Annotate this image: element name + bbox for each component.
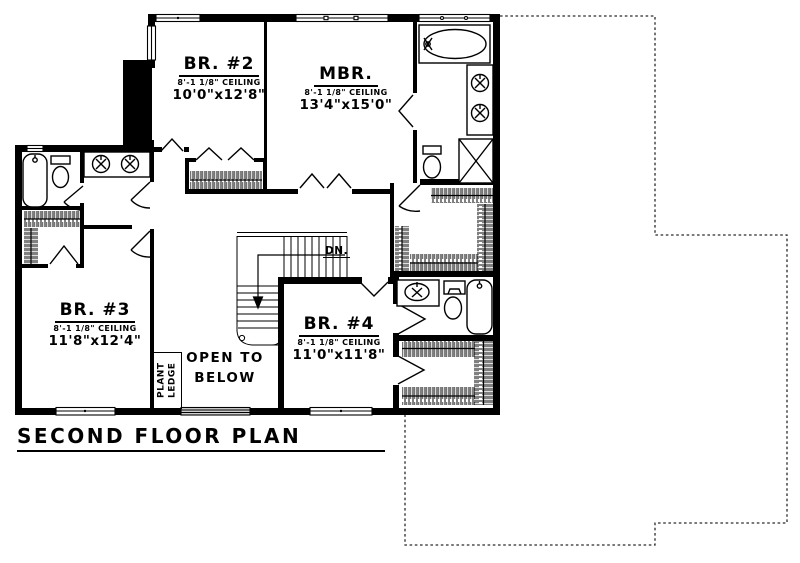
window (148, 26, 156, 60)
plan-title: SECOND FLOOR PLAN (17, 424, 301, 448)
double-vanity-icon (467, 65, 493, 135)
room-ceiling: 8'-1 1/8" CEILING (281, 339, 397, 347)
room-ceiling: 8'-1 1/8" CEILING (284, 89, 408, 97)
door-swing (131, 231, 150, 257)
window (156, 15, 200, 22)
toilet-icon (423, 146, 441, 178)
room-label-br4: BR. #4 8'-1 1/8" CEILING 11'0"x11'8" (281, 316, 397, 362)
door-swing (360, 282, 388, 296)
room-ceiling: 8'-1 1/8" CEILING (32, 325, 158, 333)
room-label-br2: BR. #2 8'-1 1/8" CEILING 10'0"x12'8" (158, 56, 280, 102)
window (181, 408, 250, 416)
room-name: MBR. (314, 66, 378, 87)
door-swing (399, 185, 420, 211)
door-swing (398, 304, 425, 334)
room-name: BR. #3 (55, 302, 136, 323)
window (310, 408, 372, 416)
door-swing (228, 148, 254, 160)
window (27, 146, 43, 152)
room-name: BR. #2 (179, 56, 260, 77)
window (296, 15, 388, 22)
sink-vanity-icon (397, 280, 439, 306)
shelf-icon (444, 281, 465, 294)
shower-icon (459, 139, 493, 183)
bathtub-icon (467, 280, 492, 334)
floor-plan-page: BR. #2 8'-1 1/8" CEILING 10'0"x12'8" MBR… (0, 0, 800, 563)
plant-ledge-label: PLANT LEDGE (156, 363, 179, 398)
open-to-below-label: OPEN TO BELOW (166, 348, 284, 389)
double-vanity-icon (84, 152, 150, 177)
toilet-icon (445, 297, 462, 319)
room-dims: 11'8"x12'4" (32, 334, 158, 348)
window (419, 15, 490, 22)
door-swing (398, 356, 424, 384)
door-swing (50, 246, 78, 264)
plan-title-underline (17, 450, 385, 452)
door-swing (196, 148, 222, 160)
toilet-icon (51, 156, 70, 188)
door-swing (131, 182, 150, 208)
bathtub-icon (23, 154, 47, 207)
room-name: BR. #4 (299, 316, 380, 337)
plant-ledge-box: PLANT LEDGE (153, 352, 182, 409)
door-swing (327, 174, 351, 188)
stairs-dn-label: DN. (323, 245, 350, 258)
room-label-mbr: MBR. 8'-1 1/8" CEILING 13'4"x15'0" (284, 66, 408, 112)
door-swing (300, 174, 324, 188)
door-swing (161, 139, 183, 151)
bathtub-icon (419, 25, 490, 63)
room-ceiling: 8'-1 1/8" CEILING (158, 79, 280, 87)
window (56, 408, 115, 416)
room-dims: 13'4"x15'0" (284, 98, 408, 112)
room-dims: 11'0"x11'8" (281, 348, 397, 362)
room-dims: 10'0"x12'8" (158, 88, 280, 102)
room-label-br3: BR. #3 8'-1 1/8" CEILING 11'8"x12'4" (32, 302, 158, 348)
